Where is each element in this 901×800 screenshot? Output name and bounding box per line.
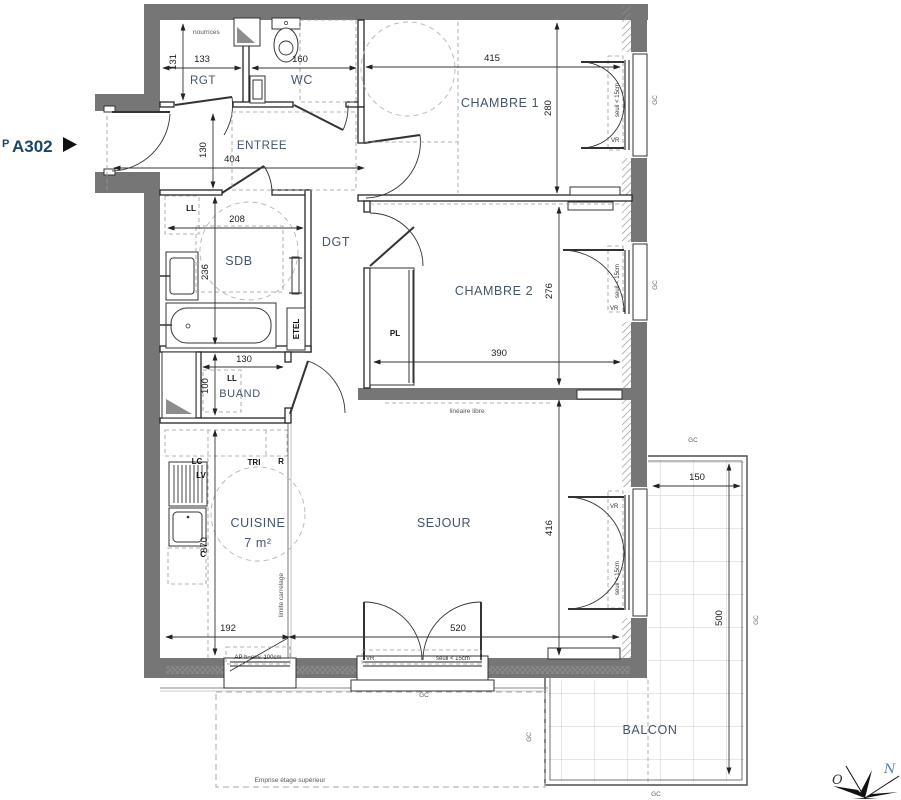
- dim-balcon-height: 500: [714, 610, 725, 626]
- gc-label: GC: [651, 791, 661, 798]
- room-label-balcon: BALCON: [622, 723, 677, 737]
- etel-label: ETEL: [292, 319, 301, 340]
- gc-label: GC: [652, 95, 659, 105]
- sdb-washbasin-icon: [160, 252, 198, 300]
- partition-dgt-chambre2: [364, 268, 370, 388]
- wall-right-1: [631, 4, 647, 58]
- partition-sdb-dgt: [305, 190, 311, 352]
- seuil-label: seuil < 15cm: [615, 561, 621, 595]
- room-area-cuisine: 7 m²: [244, 536, 271, 550]
- c-label: C: [200, 550, 206, 559]
- window-sejour-bottom: VR seuil < 15cm: [351, 602, 494, 691]
- partition-wc-chambre1: [358, 20, 364, 107]
- unit-marker-arrow: [63, 137, 77, 152]
- ll-label-sdb: LL: [186, 204, 196, 213]
- dim-chambre2-height: 276: [544, 283, 555, 299]
- dim-buand-height: 100: [200, 378, 211, 394]
- room-label-wc: WC: [291, 73, 313, 87]
- seuil-label: seuil < 15cm: [615, 264, 621, 298]
- wc-door: [294, 105, 348, 130]
- dim-wc-width: 160: [292, 54, 308, 65]
- partition-chambre1-chambre2: [358, 195, 632, 201]
- room-label-chambre1: CHAMBRE 1: [461, 96, 539, 110]
- compass-icon: N O: [832, 762, 899, 799]
- niche-sejour: [577, 390, 622, 399]
- dim-rgt-width: 133: [194, 54, 210, 65]
- lc-label: LC: [192, 457, 203, 466]
- dim-buand-width: 130: [236, 354, 252, 365]
- r-label: R: [278, 457, 284, 466]
- buand-door: [290, 361, 345, 414]
- turning-circle-chambre1: [361, 22, 455, 116]
- limite-carrelage-label: limite carrelage: [278, 573, 285, 617]
- seuil-label: seuil < 15cm: [615, 83, 621, 117]
- wall-right-3: [631, 318, 647, 491]
- dim-chambre1-height: 280: [543, 100, 554, 116]
- rgt-door: [175, 97, 233, 135]
- dishwasher-icon: [169, 462, 207, 506]
- ap-window-label: AP h=env. 100cm: [235, 655, 282, 661]
- room-label-sdb: SDB: [225, 254, 253, 268]
- chambre2-door: [370, 213, 423, 266]
- chambre1-door: [364, 135, 420, 198]
- wall-top: [150, 4, 648, 20]
- room-label-entree: ENTREE: [237, 140, 287, 152]
- partition-entree-chambre1: [358, 107, 364, 143]
- sdb-door: [222, 166, 272, 193]
- dim-cuisine-width: 192: [220, 623, 236, 634]
- dim-sdb-height: 236: [200, 264, 211, 280]
- pl-label: PL: [390, 329, 400, 338]
- dim-entree-width: 404: [224, 154, 240, 165]
- unit-tag[interactable]: P A302: [2, 137, 77, 156]
- dim-entree-height: 130: [198, 142, 209, 158]
- dim-sejour-width: 520: [450, 623, 466, 634]
- wall-right-4: [631, 614, 647, 678]
- lineaire-libre-label: linéaire libre: [449, 408, 484, 415]
- compass-west-label: O: [832, 773, 843, 788]
- radiator-chambre2: [568, 202, 613, 210]
- emprise-outline: [216, 692, 545, 787]
- dim-sdb-width: 208: [229, 214, 245, 225]
- gc-label: GC: [753, 615, 760, 625]
- room-label-chambre2: CHAMBRE 2: [455, 284, 533, 298]
- room-label-buand: BUAND: [219, 388, 261, 400]
- window-cuisine: AP h=env. 100cm: [224, 638, 296, 688]
- vr-label: VR: [610, 504, 619, 510]
- buand-closet: [162, 352, 196, 418]
- wall-right-2: [631, 152, 647, 246]
- room-label-cuisine: CUISINE: [231, 516, 286, 530]
- tri-label: TRI: [248, 458, 261, 467]
- room-label-rgt: RGT: [190, 75, 216, 87]
- vr-label: VR: [610, 306, 619, 312]
- dim-balcon-width: 150: [689, 472, 705, 483]
- vr-label: VR: [366, 656, 375, 662]
- dim-rgt-height: 131: [168, 54, 179, 70]
- room-label-dgt: DGT: [322, 235, 350, 249]
- wall-left-lower: [144, 193, 160, 678]
- bathtub-icon: [160, 303, 276, 348]
- wc-zone: [300, 20, 356, 102]
- gc-label: GC: [526, 732, 533, 742]
- dim-chambre1-width: 415: [484, 53, 500, 64]
- etel-box: ETEL: [287, 308, 305, 350]
- ll-label-buand: LL: [227, 374, 237, 383]
- gc-label: GC: [419, 692, 429, 699]
- gc-label: GC: [688, 437, 698, 444]
- window-chambre2: VR seuil < 15cm: [563, 242, 648, 322]
- room-label-sejour: SEJOUR: [417, 516, 471, 530]
- towel-radiator-icon: [289, 257, 302, 294]
- unit-number: A302: [12, 137, 53, 156]
- nourrices-label: nourrices: [193, 29, 220, 36]
- partition-buand-cuisine: [160, 418, 290, 423]
- unit-prefix: P: [2, 138, 9, 150]
- vr-label: VR: [611, 138, 620, 144]
- window-chambre1: VR seuil < 15cm: [581, 52, 648, 158]
- compass-north-label: N: [883, 762, 896, 777]
- pl-closet: [370, 268, 414, 385]
- emprise-label: Emprise étage supérieur: [255, 777, 327, 784]
- dim-chambre2-width: 390: [491, 348, 507, 359]
- window-sejour-right: VR seuil < 15cm: [568, 487, 648, 618]
- wall-left-upper: [144, 4, 160, 94]
- floor-plan-a302: VR seuil < 15cm VR seuil < 15cm VR: [0, 0, 901, 800]
- wc-basin-icon: [250, 76, 265, 103]
- radiator-chambre1: [570, 187, 620, 195]
- lv-label: LV: [196, 471, 206, 480]
- gc-label: GC: [652, 280, 659, 290]
- nourrices-box: [234, 18, 260, 46]
- seuil-label: seuil < 15cm: [436, 656, 470, 662]
- dim-sejour-height: 416: [544, 520, 555, 536]
